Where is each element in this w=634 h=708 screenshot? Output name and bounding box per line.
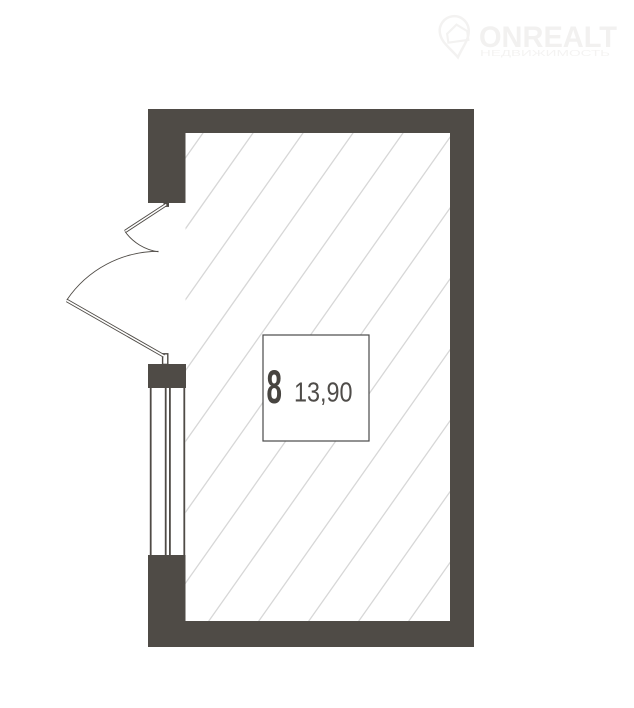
svg-text:8: 8 — [267, 362, 282, 414]
svg-text:13,90: 13,90 — [294, 377, 353, 408]
svg-text:НЕДВИЖИМОСТЬ: НЕДВИЖИМОСТЬ — [480, 48, 611, 58]
